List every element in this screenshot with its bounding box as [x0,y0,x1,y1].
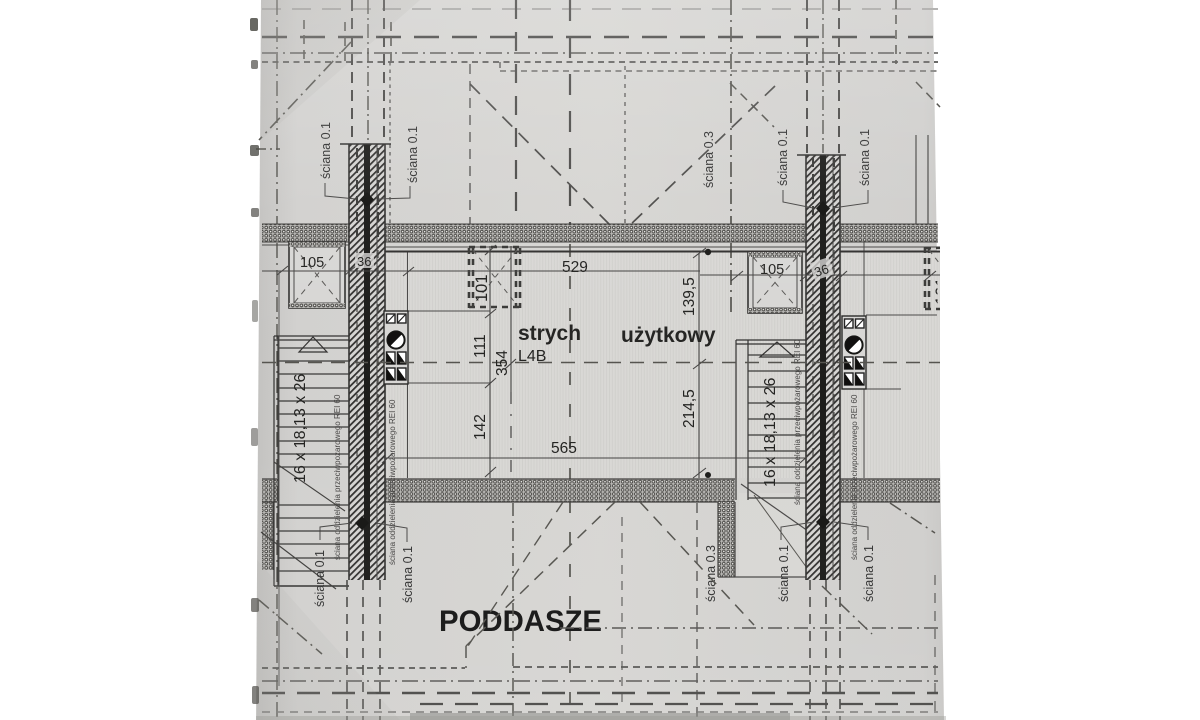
svg-text:ściana 0.1: ściana 0.1 [319,122,333,179]
svg-text:354: 354 [494,350,511,376]
svg-text:ściana 0.3: ściana 0.3 [702,131,716,188]
svg-text:ściana 0.1: ściana 0.1 [858,129,872,186]
svg-text:ściana 0.1: ściana 0.1 [776,129,790,186]
svg-text:101: 101 [473,274,491,302]
svg-text:ściana 0.3: ściana 0.3 [704,545,718,602]
svg-text:ściana 0.1: ściana 0.1 [401,546,415,603]
svg-text:ściana 0.1: ściana 0.1 [777,545,791,602]
svg-text:PODDASZE: PODDASZE [439,605,602,638]
svg-text:ściana oddzielenia przeciwpoża: ściana oddzielenia przeciwpożarowego REI… [388,399,397,565]
svg-text:139,5: 139,5 [681,277,698,316]
svg-text:użytkowy: użytkowy [621,324,716,347]
svg-text:ściana oddzielenia przeciwpoża: ściana oddzielenia przeciwpożarowego REI… [793,339,802,505]
svg-text:16 x 18,13 x 26: 16 x 18,13 x 26 [292,373,309,483]
svg-text:strych: strych [518,322,581,345]
svg-text:529: 529 [562,259,588,276]
svg-text:L4B: L4B [518,348,546,365]
svg-text:105: 105 [760,262,784,278]
svg-text:101: 101 [933,277,951,305]
svg-text:ściana 0.1: ściana 0.1 [313,550,327,607]
svg-text:36: 36 [357,254,371,269]
svg-text:ściana oddzielenia przeciwpoża: ściana oddzielenia przeciwpożarowego REI… [850,394,859,560]
svg-text:ściana 0.1: ściana 0.1 [862,545,876,602]
svg-text:214,5: 214,5 [681,389,698,428]
svg-text:142: 142 [472,414,489,440]
svg-text:16 x 18,13 x 26: 16 x 18,13 x 26 [762,377,779,487]
svg-text:105: 105 [300,255,324,271]
svg-text:ściana oddzielenia przeciwpoża: ściana oddzielenia przeciwpożarowego REI… [333,394,342,560]
svg-text:ściana 0.1: ściana 0.1 [406,126,420,183]
svg-text:565: 565 [551,440,577,457]
svg-text:111: 111 [472,334,489,358]
